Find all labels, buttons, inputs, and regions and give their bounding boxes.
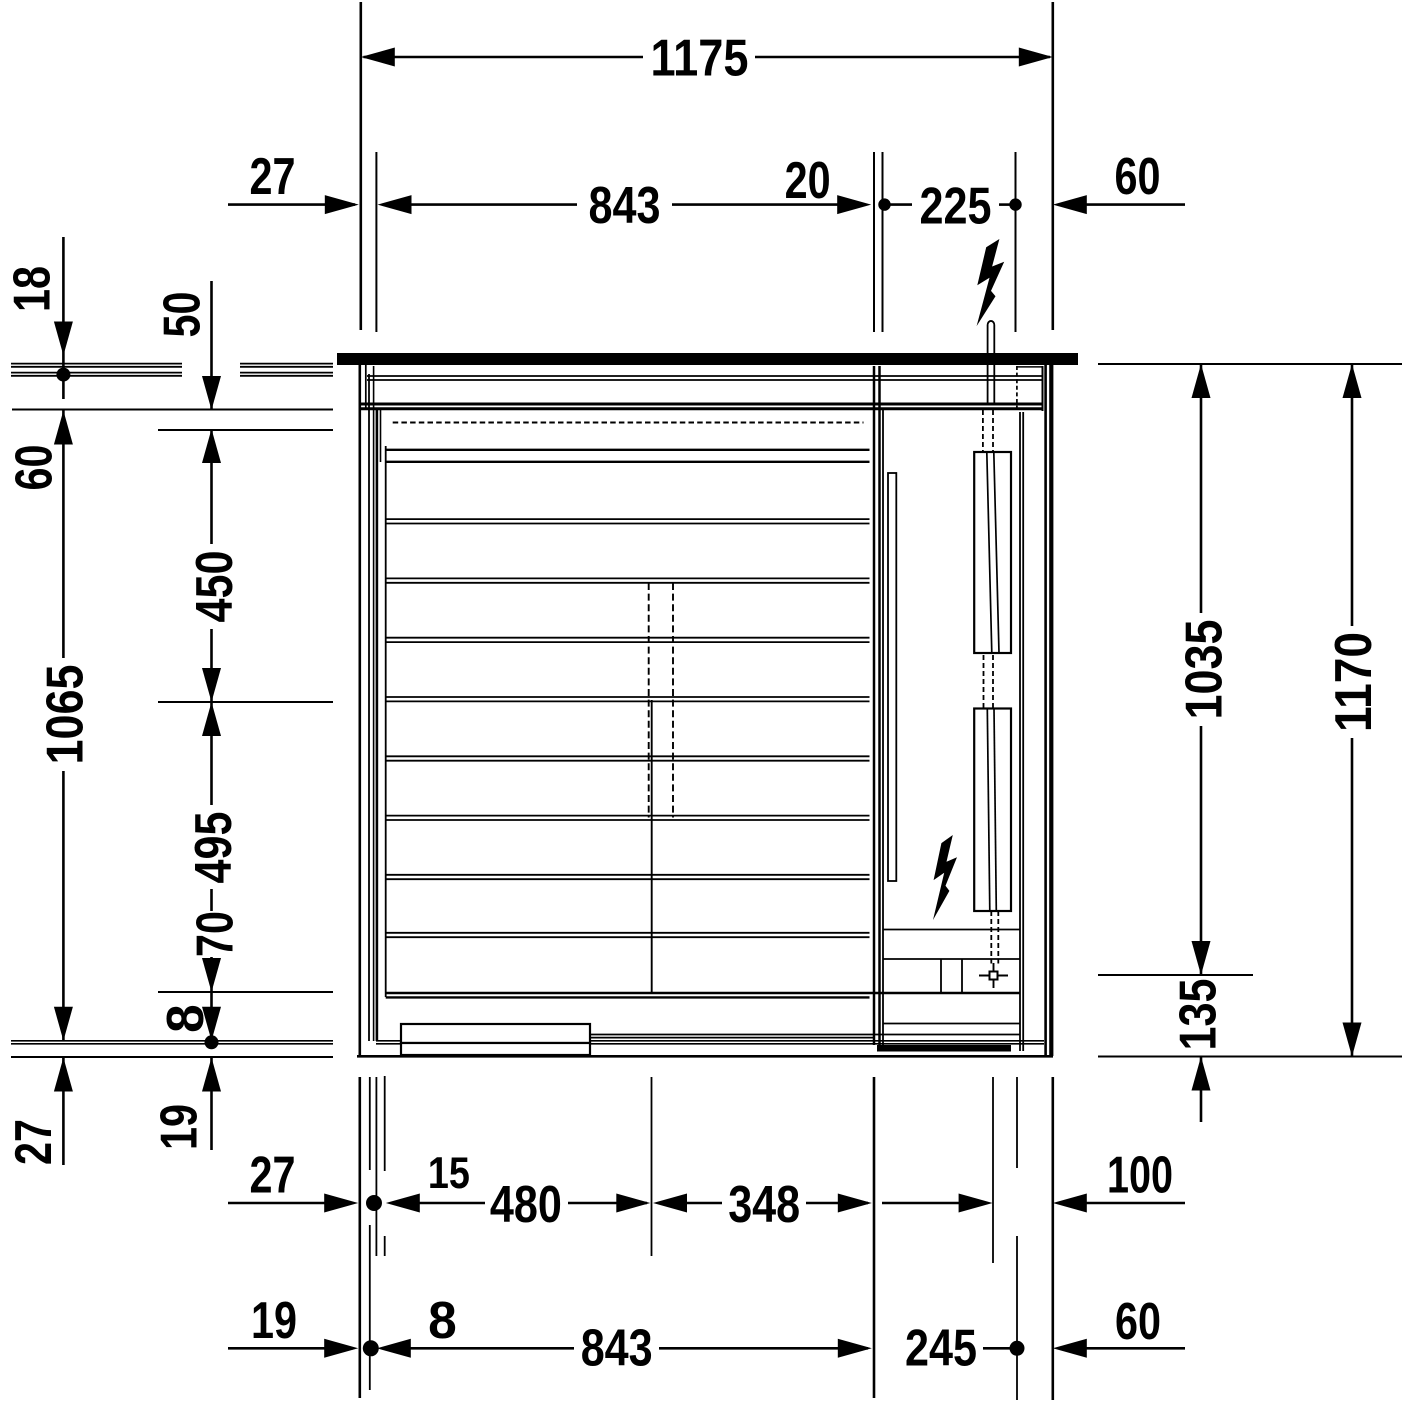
svg-text:27: 27 (250, 147, 296, 205)
svg-text:843: 843 (589, 176, 661, 234)
svg-text:19: 19 (149, 1104, 207, 1150)
svg-text:19: 19 (251, 1291, 297, 1349)
svg-text:8: 8 (428, 1291, 457, 1349)
svg-text:70: 70 (185, 911, 243, 957)
svg-text:27: 27 (250, 1145, 296, 1203)
svg-text:495: 495 (184, 812, 242, 884)
svg-text:1170: 1170 (1324, 632, 1382, 732)
svg-text:60: 60 (1115, 1292, 1161, 1350)
svg-text:1035: 1035 (1174, 620, 1232, 720)
svg-text:8: 8 (156, 1004, 214, 1033)
svg-text:15: 15 (428, 1149, 470, 1198)
svg-text:1065: 1065 (36, 665, 94, 765)
svg-text:18: 18 (3, 266, 61, 312)
svg-text:843: 843 (581, 1318, 653, 1376)
svg-text:225: 225 (920, 176, 992, 234)
svg-text:348: 348 (728, 1175, 800, 1233)
svg-text:450: 450 (185, 551, 243, 623)
svg-text:1175: 1175 (651, 28, 749, 86)
svg-text:245: 245 (905, 1318, 977, 1376)
svg-text:27: 27 (4, 1119, 62, 1165)
svg-text:20: 20 (785, 151, 831, 209)
svg-text:135: 135 (1168, 979, 1226, 1051)
svg-text:60: 60 (4, 445, 62, 491)
svg-text:60: 60 (1115, 147, 1161, 205)
svg-text:100: 100 (1107, 1146, 1173, 1204)
svg-text:480: 480 (490, 1175, 562, 1233)
svg-text:50: 50 (152, 292, 210, 338)
